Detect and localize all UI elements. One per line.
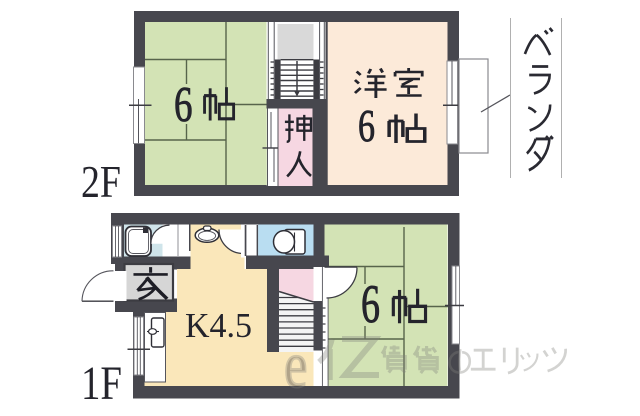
svg-text:1F: 1F	[81, 357, 122, 410]
svg-text:6: 6	[358, 101, 375, 151]
svg-text:6: 6	[174, 76, 193, 132]
svg-text:K4.5: K4.5	[185, 306, 252, 345]
svg-text:2F: 2F	[81, 156, 121, 207]
svg-text:6: 6	[361, 274, 380, 334]
svg-text:e: e	[284, 328, 307, 401]
